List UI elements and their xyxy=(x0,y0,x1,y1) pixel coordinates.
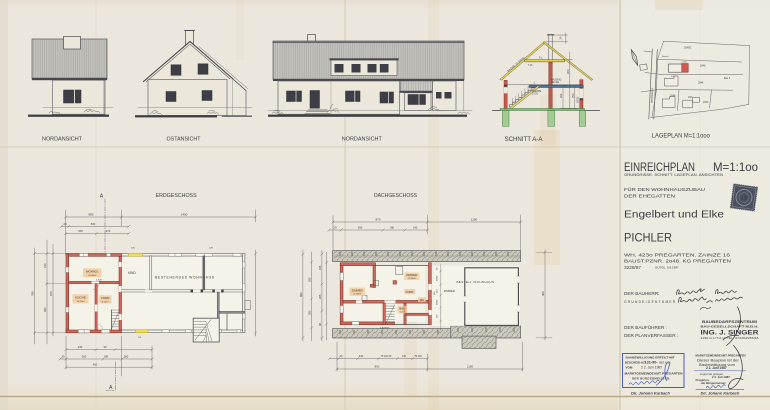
svg-text:KIND: KIND xyxy=(128,271,136,275)
svg-text:WOHNZI.: WOHNZI. xyxy=(86,269,99,273)
svg-text:5 AUFTR.: 5 AUFTR. xyxy=(380,326,390,329)
svg-text:75 100 25: 75 100 25 xyxy=(381,355,392,358)
svg-text:280: 280 xyxy=(308,310,312,315)
svg-text:BAD: BAD xyxy=(399,306,405,310)
svg-text:140: 140 xyxy=(413,226,418,230)
svg-text:Strassl: Strassl xyxy=(662,55,669,58)
svg-text:MARKTGEMEINDEAMT PREGARTEN: MARKTGEMEINDEAMT PREGARTEN xyxy=(696,354,747,358)
svg-text:GUTGL. 5.8.1987: GUTGL. 5.8.1987 xyxy=(655,266,679,270)
svg-text:17/29: 17/29 xyxy=(532,93,538,95)
svg-text:280: 280 xyxy=(124,355,129,359)
svg-text:VORR: VORR xyxy=(101,296,111,300)
svg-text:90: 90 xyxy=(104,345,107,349)
svg-text:2 2. Juni 1987: 2 2. Juni 1987 xyxy=(641,366,662,370)
svg-text:Dir. Johann Karbach: Dir. Johann Karbach xyxy=(701,391,740,396)
svg-text:300: 300 xyxy=(78,229,83,233)
svg-text:NORDANSICHT: NORDANSICHT xyxy=(342,136,383,142)
svg-text:PICHLER: PICHLER xyxy=(624,232,672,244)
svg-text:250: 250 xyxy=(571,93,575,98)
svg-text:DECKE: DECKE xyxy=(551,82,559,84)
svg-text:BAUBEWILLIGUNG ERTEILT MIT: BAUBEWILLIGUNG ERTEILT MIT xyxy=(626,356,675,360)
svg-text:204: 204 xyxy=(688,96,693,99)
svg-text:200: 200 xyxy=(559,93,563,98)
svg-text:DER BAUHERR:: DER BAUHERR: xyxy=(624,291,659,296)
svg-text:2043: 2043 xyxy=(703,101,709,104)
svg-text:230: 230 xyxy=(78,345,83,349)
svg-text:460: 460 xyxy=(93,363,98,367)
svg-text:2 2. Juni 1987: 2 2. Juni 1987 xyxy=(706,366,727,370)
svg-text:BAUST.PZNR. 2o48. KG PREGARTEN: BAUST.PZNR. 2o48. KG PREGARTEN xyxy=(624,259,731,264)
svg-text:90/20: 90/20 xyxy=(437,299,439,305)
svg-text:265: 265 xyxy=(318,294,322,299)
svg-text:5.2m²: 5.2m² xyxy=(400,310,405,313)
svg-text:der Bürgermeister:: der Bürgermeister: xyxy=(701,381,726,385)
svg-text:25.80m²: 25.80m² xyxy=(88,274,96,277)
svg-text:BAU-GESELLSCHAFT M.B.H.: BAU-GESELLSCHAFT M.B.H. xyxy=(701,325,759,329)
svg-text:3228/87: 3228/87 xyxy=(624,265,641,270)
svg-text:BESCHEID-AZ:: BESCHEID-AZ: xyxy=(625,360,646,364)
svg-text:NORDANSICHT: NORDANSICHT xyxy=(42,136,83,142)
svg-text:30: 30 xyxy=(62,355,65,359)
svg-text:6.10m²: 6.10m² xyxy=(102,300,109,303)
svg-text:GRUNDRISSE. SCHNITT. LAGEPLAN.: GRUNDRISSE. SCHNITT. LAGEPLAN. ANSICHTEN xyxy=(624,173,724,177)
svg-text:2049/2: 2049/2 xyxy=(684,47,692,50)
svg-text:80/20: 80/20 xyxy=(577,96,580,103)
svg-text:12.4Øm²: 12.4Øm² xyxy=(408,277,416,280)
svg-text:440: 440 xyxy=(359,354,364,358)
svg-text:9Ø: 9Ø xyxy=(104,355,108,359)
svg-text:Bau 1: Bau 1 xyxy=(724,77,731,80)
svg-text:Dir. Johann Karbach: Dir. Johann Karbach xyxy=(631,391,670,396)
svg-text:1150: 1150 xyxy=(471,218,478,222)
svg-text:165: 165 xyxy=(318,265,322,270)
svg-text:BESTEHENDES WOHNHAUS: BESTEHENDES WOHNHAUS xyxy=(155,276,215,280)
svg-text:VORR.: VORR. xyxy=(405,290,414,294)
svg-text:Engelbert und Elke: Engelbert und Elke xyxy=(624,209,724,221)
svg-text:360: 360 xyxy=(358,226,363,230)
svg-text:A: A xyxy=(100,194,104,200)
svg-text:MARKTGEMEINDEAMT PREGARTEN: MARKTGEMEINDEAMT PREGARTEN xyxy=(625,372,683,376)
svg-text:DACHGESCHOSS: DACHGESCHOSS xyxy=(374,193,417,199)
svg-text:90/20: 90/20 xyxy=(437,275,439,281)
svg-text:F.L.: F.L. xyxy=(539,56,543,60)
svg-text:DER EHEGATTEN: DER EHEGATTEN xyxy=(624,193,676,199)
svg-text:2044: 2044 xyxy=(670,94,676,97)
svg-text:1430: 1430 xyxy=(181,213,188,217)
svg-text:+4.84: +4.84 xyxy=(681,62,687,64)
svg-text:WH. 423o PREGARTEN. ZAINZE 16: WH. 423o PREGARTEN. ZAINZE 16 xyxy=(624,252,731,257)
svg-text:20: 20 xyxy=(64,222,67,226)
svg-text:DER PLANVERFASSER :: DER PLANVERFASSER : xyxy=(624,333,678,338)
svg-text:7.16: 7.16 xyxy=(528,64,533,67)
svg-text:260: 260 xyxy=(566,69,570,74)
svg-text:20: 20 xyxy=(334,226,337,230)
svg-text:2046: 2046 xyxy=(698,82,704,85)
svg-text:KÜCHE: KÜCHE xyxy=(75,295,86,299)
svg-text:DER BÜRGERMEISTER:: DER BÜRGERMEISTER: xyxy=(632,377,671,381)
svg-text:270: 270 xyxy=(106,229,111,233)
svg-text:A: A xyxy=(109,385,113,391)
svg-text:LAGEPLAN M=1:1ooo: LAGEPLAN M=1:1ooo xyxy=(652,134,711,140)
svg-text:420: 420 xyxy=(49,291,53,296)
svg-text:BAUBEDARFSZENTRUM: BAUBEDARFSZENTRUM xyxy=(702,320,757,324)
svg-text:890: 890 xyxy=(375,365,380,369)
svg-text:ZIMMER: ZIMMER xyxy=(352,288,363,292)
svg-text:1150: 1150 xyxy=(467,365,473,369)
svg-text:VOM: VOM xyxy=(626,366,633,370)
svg-text:Dieser Bauplan ist der: Dieser Bauplan ist der xyxy=(697,358,740,362)
svg-text:1Ø: 1Ø xyxy=(138,337,141,339)
svg-text:300: 300 xyxy=(82,355,87,359)
svg-text:790: 790 xyxy=(30,291,34,296)
svg-text:215: 215 xyxy=(402,355,407,358)
svg-text:985: 985 xyxy=(88,213,93,217)
svg-text:BESTEH. WOHNHAUS: BESTEH. WOHNHAUS xyxy=(457,280,495,284)
svg-text:OSTANSICHT: OSTANSICHT xyxy=(167,137,202,143)
svg-text:2048: 2048 xyxy=(700,64,706,67)
svg-text:2 2. Juli 1987: 2 2. Juli 1987 xyxy=(712,375,730,379)
svg-text:480: 480 xyxy=(43,307,47,312)
svg-text:530: 530 xyxy=(91,222,96,226)
svg-text:4230 G.U.T.A.U. TEL. 07236/225: 4230 G.U.T.A.U. TEL. 07236/2256|18 xyxy=(701,336,760,340)
svg-text:FÜR DEN WOHNHAUSZUBAU: FÜR DEN WOHNHAUSZUBAU xyxy=(624,186,706,193)
svg-text:75 100: 75 100 xyxy=(414,355,422,358)
svg-text:290: 290 xyxy=(308,277,312,282)
svg-text:9Ø: 9Ø xyxy=(390,226,394,230)
svg-text:870: 870 xyxy=(375,218,380,222)
svg-text:2-B.B: 2-B.B xyxy=(96,280,102,282)
svg-text:890: 890 xyxy=(299,292,303,297)
svg-text:GRUNDEIGENTÜMER: GRUNDEIGENTÜMER xyxy=(624,300,676,304)
svg-text:15.9Øm²: 15.9Øm² xyxy=(353,293,361,296)
svg-text:480: 480 xyxy=(541,291,545,296)
svg-text:WC: WC xyxy=(420,298,424,302)
svg-text:ZIMMER: ZIMMER xyxy=(406,273,417,277)
svg-text:DER BAUFÜHRER :: DER BAUFÜHRER : xyxy=(624,324,667,330)
svg-text:240: 240 xyxy=(43,263,47,268)
svg-text:131-90-: 131-90- xyxy=(645,361,659,365)
svg-text:ZIMMER: ZIMMER xyxy=(444,289,455,293)
svg-text:SCHNITT A-A: SCHNITT A-A xyxy=(505,136,544,143)
svg-text:14.25m²: 14.25m² xyxy=(76,300,84,303)
svg-text:ERDGESCHOSS: ERDGESCHOSS xyxy=(156,193,197,199)
